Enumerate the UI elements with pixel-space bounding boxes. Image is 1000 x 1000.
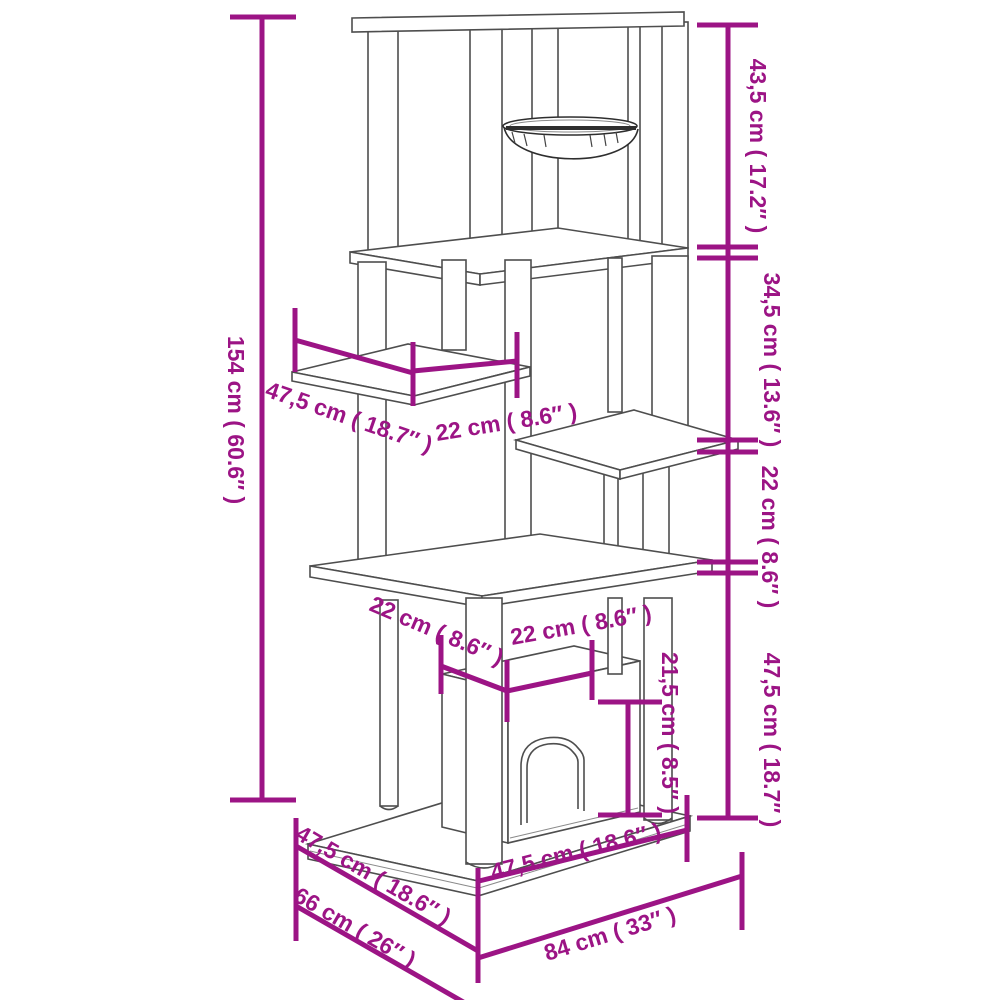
hanging-basket [503, 117, 638, 159]
scratch-post [470, 26, 502, 252]
dim-label-third-section-height: 22 cm ( 8.6″ ) [757, 466, 783, 609]
scratch-post [652, 256, 688, 442]
dim-label-top-section-height: 43,5 cm ( 17.2″ ) [745, 59, 771, 234]
dim-label-total-height: 154 cm ( 60.6″ ) [223, 336, 249, 504]
diagram-svg: 154 cm ( 60.6″ ) 43,5 cm ( 17.2″ ) 34,5 … [0, 0, 1000, 1000]
dimension-diagram: 154 cm ( 60.6″ ) 43,5 cm ( 17.2″ ) 34,5 … [0, 0, 1000, 1000]
scratch-post [380, 600, 398, 806]
arch-doorway [521, 737, 584, 825]
dim-label-bottom-section-height: 47,5 cm ( 18.7″ ) [759, 653, 785, 828]
scratch-post [662, 22, 688, 248]
scratch-post [368, 30, 398, 252]
scratch-post [442, 260, 466, 350]
dim-label-second-section-height: 34,5 cm ( 13.6″ ) [759, 273, 785, 448]
dim-label-door-height: 21,5 cm ( 8.5″ ) [657, 652, 683, 814]
dim-label-house-width: 22 cm ( 8.6″ ) [508, 600, 653, 650]
scratch-post [608, 258, 622, 412]
